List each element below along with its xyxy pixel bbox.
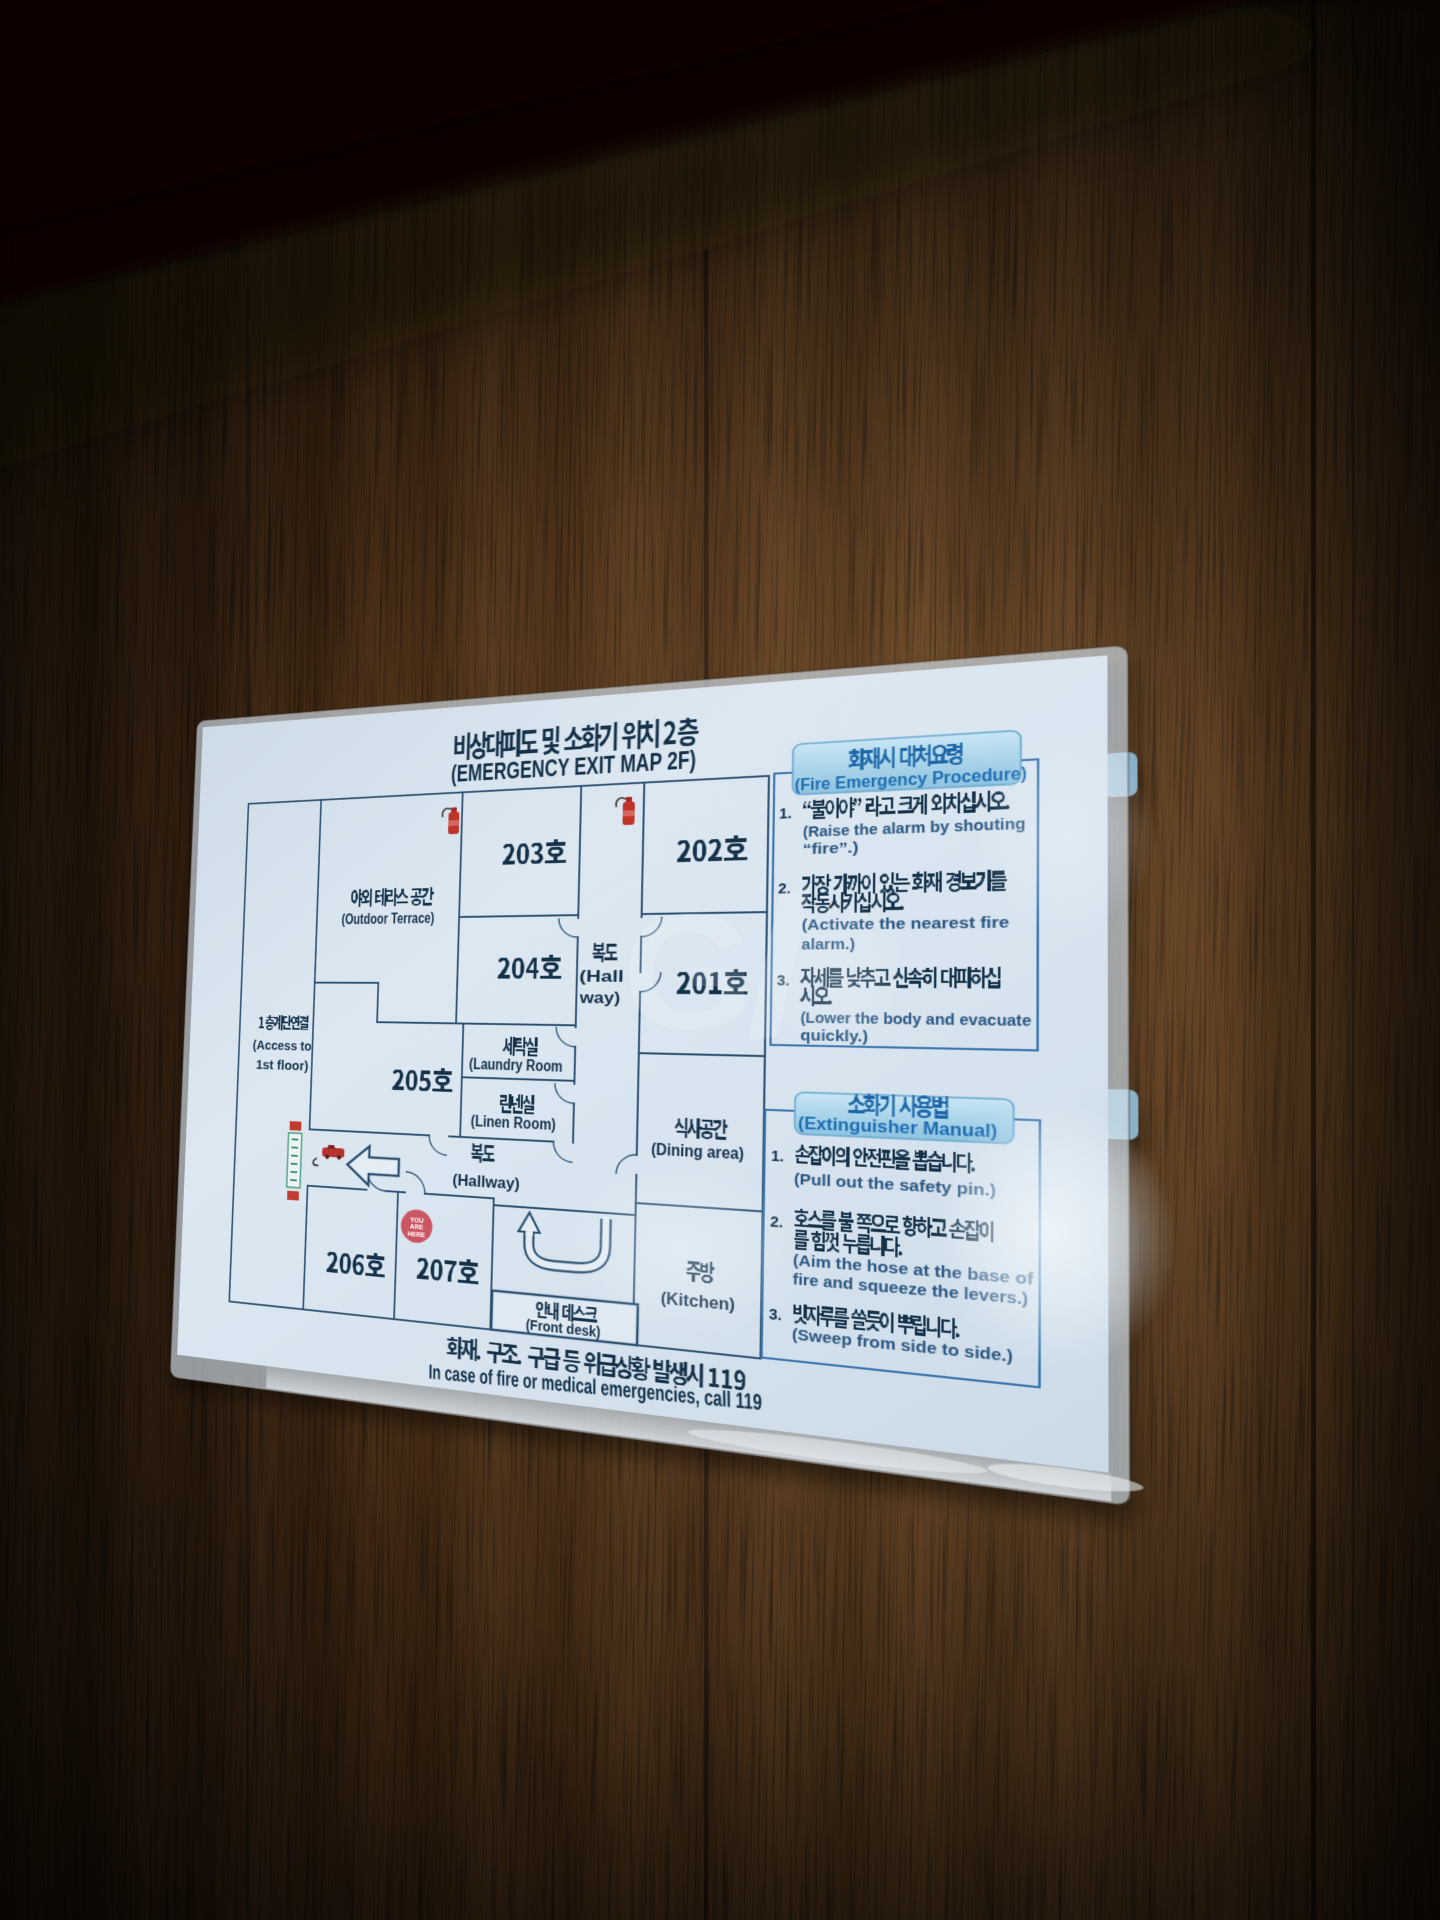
svg-text:1st floor): 1st floor) [256, 1057, 309, 1073]
svg-text:1.: 1. [771, 1149, 784, 1166]
svg-text:HERE: HERE [408, 1231, 426, 1240]
svg-text:(Laundry Room: (Laundry Room [469, 1056, 563, 1076]
svg-text:(Outdoor Terrace): (Outdoor Terrace) [341, 910, 434, 928]
svg-text:(Access to: (Access to [252, 1038, 311, 1054]
svg-text:G: G [620, 878, 757, 1066]
svg-text:(Hall: (Hall [579, 968, 624, 986]
svg-text:way): way) [578, 989, 620, 1007]
svg-text:1.: 1. [779, 806, 792, 822]
svg-text:“fire”.): “fire”.) [803, 839, 859, 858]
